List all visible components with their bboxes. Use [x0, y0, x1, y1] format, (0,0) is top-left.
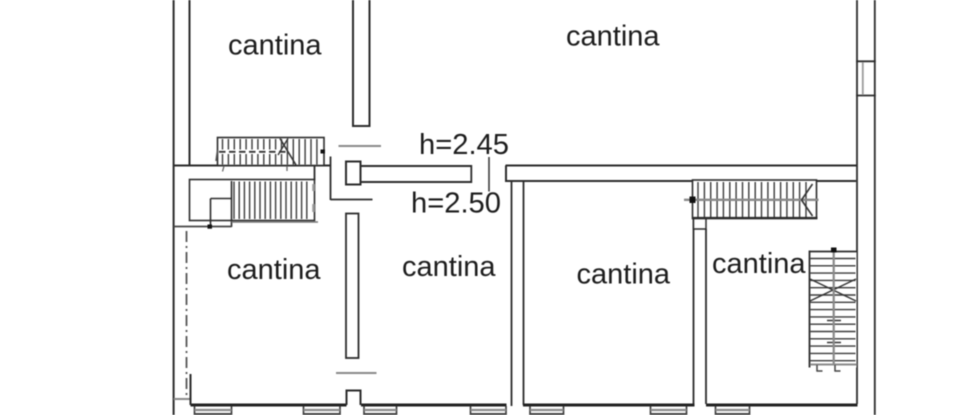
svg-text:cantina: cantina: [577, 259, 671, 291]
svg-text:cantina: cantina: [227, 254, 321, 286]
svg-text:cantina: cantina: [712, 248, 806, 280]
svg-text:h=2.50: h=2.50: [411, 188, 501, 220]
svg-text:cantina: cantina: [566, 21, 660, 53]
svg-text:h=2.45: h=2.45: [419, 129, 509, 161]
svg-text:cantina: cantina: [228, 30, 322, 62]
svg-text:cantina: cantina: [402, 251, 496, 283]
